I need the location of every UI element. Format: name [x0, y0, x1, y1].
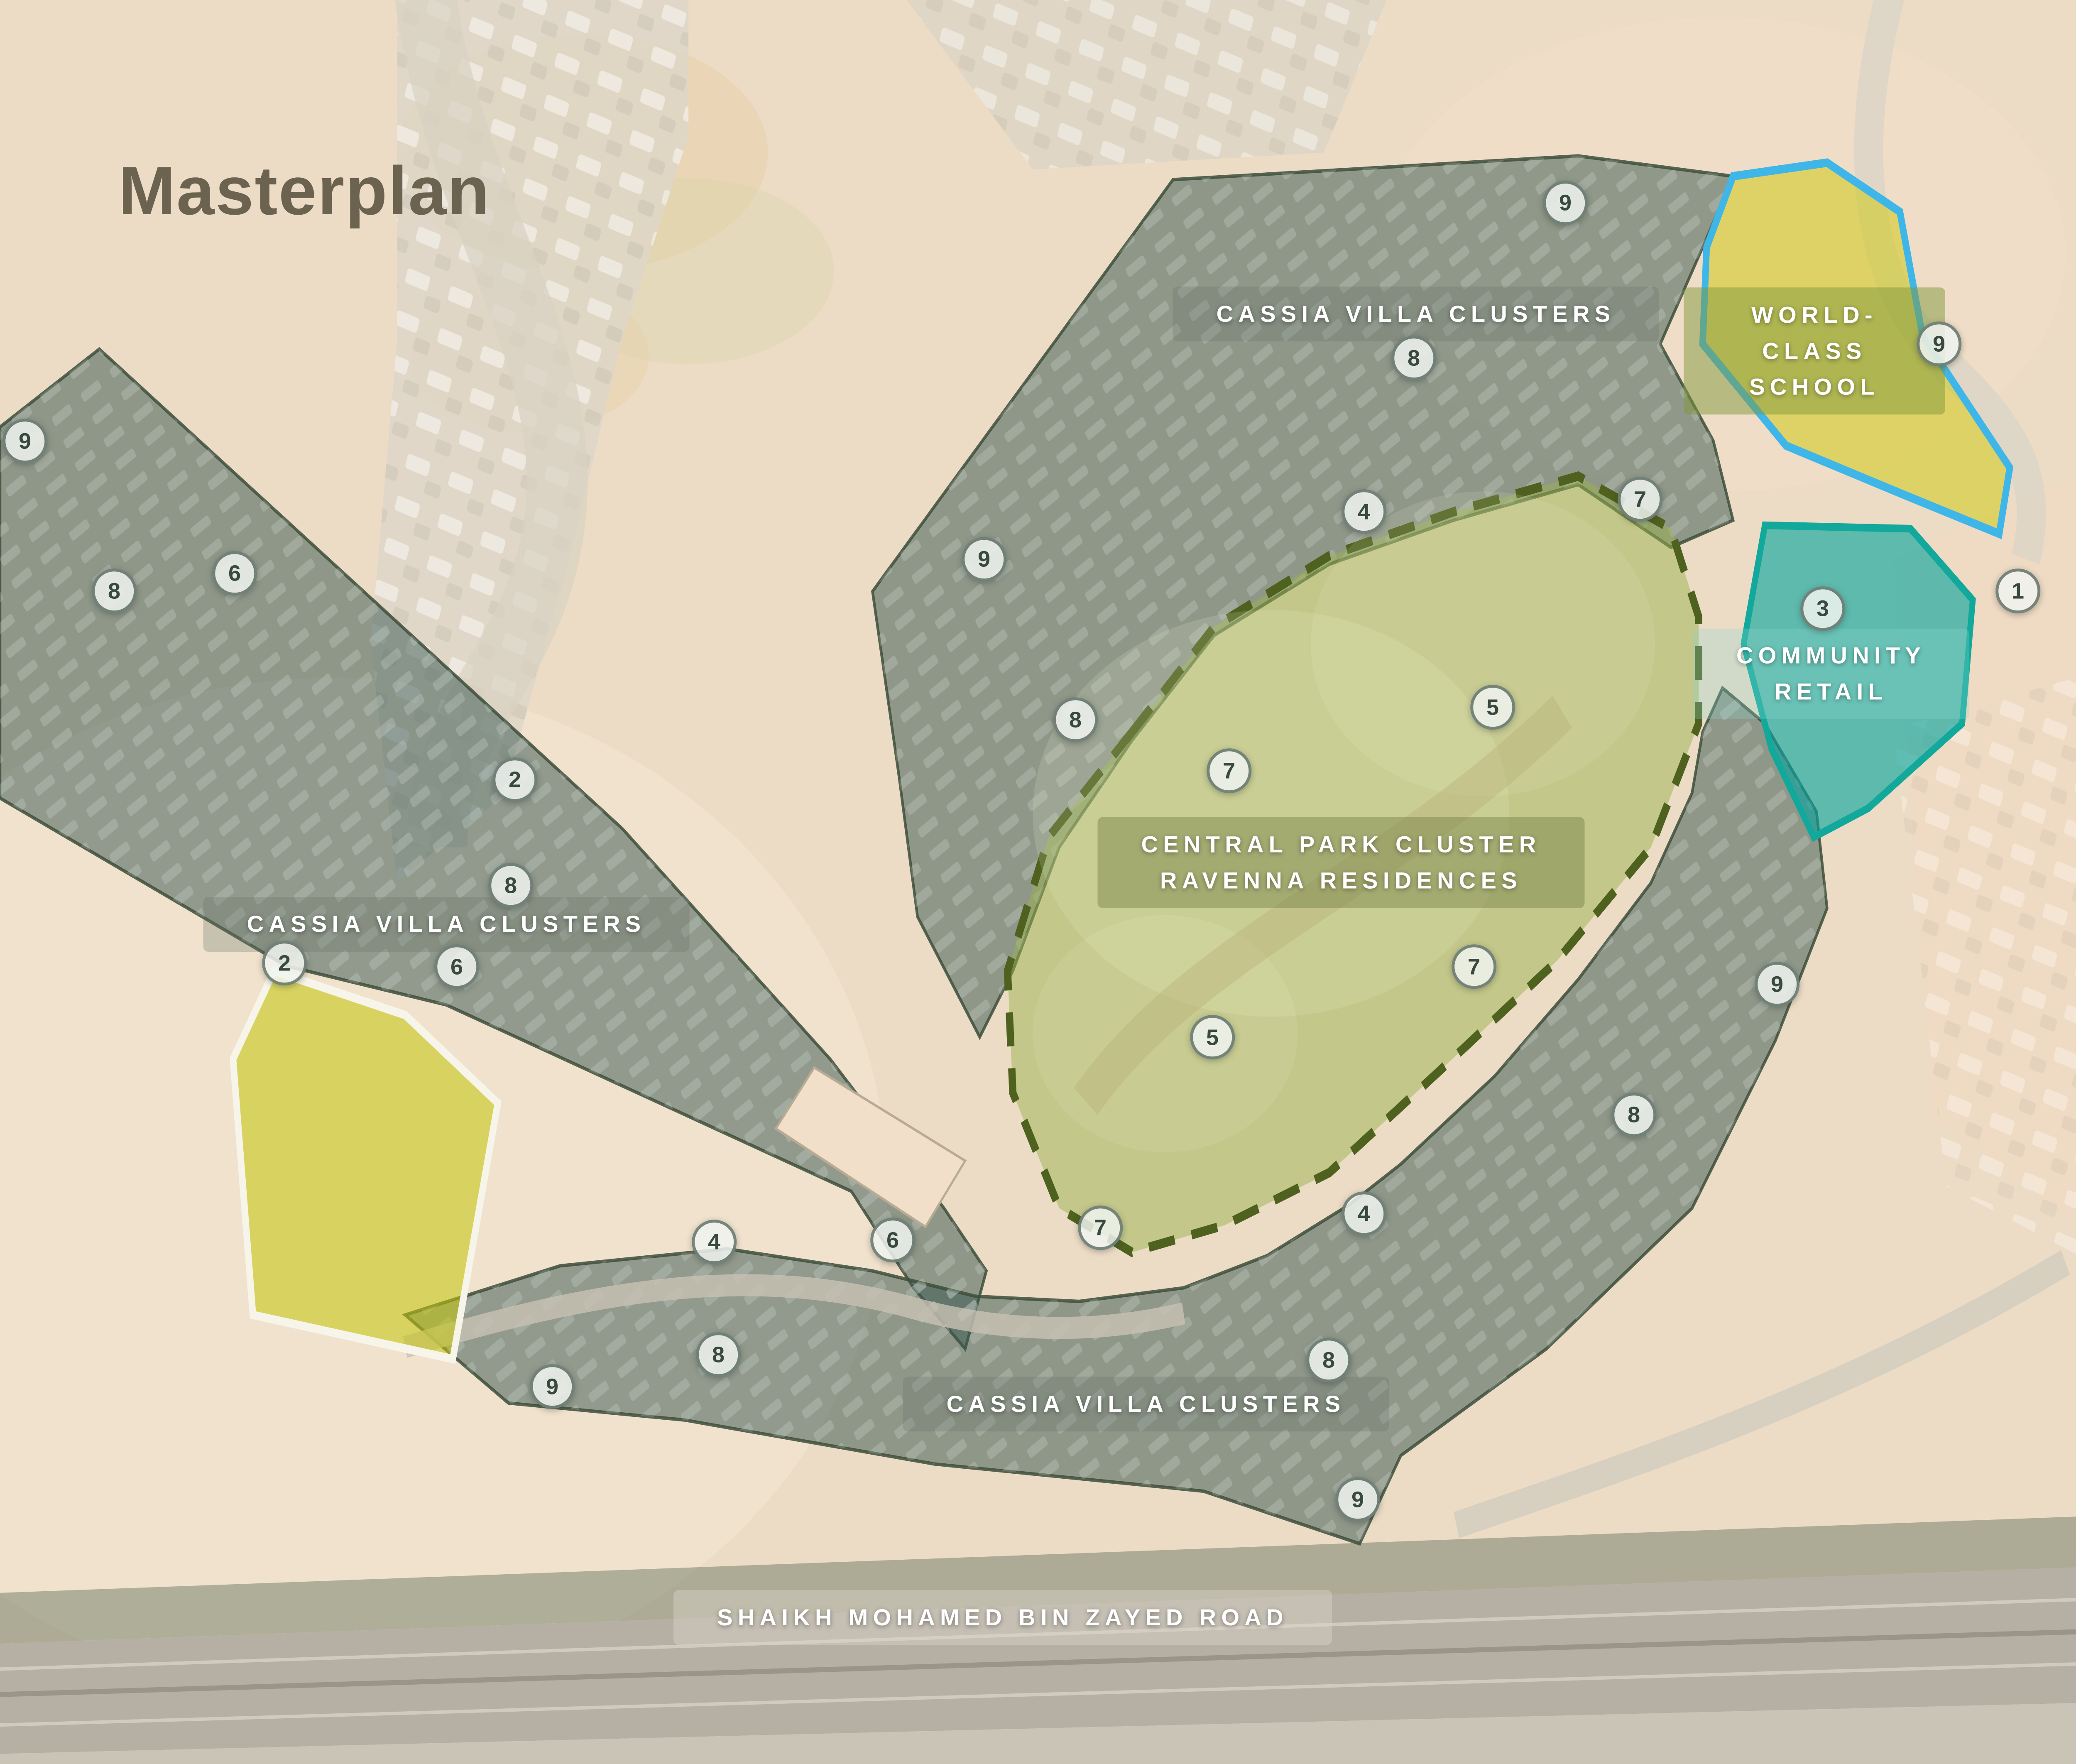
map-marker-8[interactable]: 8: [1053, 697, 1098, 742]
markers-layer: 989134798576892826798564748989: [0, 0, 2076, 1764]
map-marker-9[interactable]: 9: [1917, 322, 1961, 367]
map-marker-4[interactable]: 4: [1342, 489, 1386, 534]
map-marker-8[interactable]: 8: [488, 863, 533, 908]
map-marker-8[interactable]: 8: [1306, 1338, 1351, 1382]
map-marker-6[interactable]: 6: [434, 944, 479, 989]
masterplan-map: Masterplan CASSIA VILLA CLUSTERS CASSIA …: [0, 0, 2076, 1764]
map-marker-8[interactable]: 8: [696, 1333, 741, 1377]
map-marker-5[interactable]: 5: [1470, 685, 1515, 730]
map-marker-4[interactable]: 4: [692, 1220, 737, 1264]
map-marker-6[interactable]: 6: [870, 1218, 915, 1263]
map-marker-8[interactable]: 8: [1391, 336, 1436, 381]
map-marker-9[interactable]: 9: [530, 1364, 575, 1409]
map-marker-7[interactable]: 7: [1078, 1205, 1123, 1250]
map-marker-2[interactable]: 2: [492, 757, 537, 802]
map-marker-9[interactable]: 9: [2, 419, 47, 463]
map-marker-6[interactable]: 6: [212, 551, 257, 596]
map-marker-9[interactable]: 9: [962, 537, 1006, 582]
map-marker-9[interactable]: 9: [1755, 962, 1799, 1007]
map-marker-4[interactable]: 4: [1342, 1191, 1386, 1236]
map-marker-1[interactable]: 1: [1995, 568, 2040, 613]
map-marker-8[interactable]: 8: [92, 568, 137, 613]
map-marker-9[interactable]: 9: [1335, 1477, 1380, 1522]
map-marker-8[interactable]: 8: [1611, 1093, 1656, 1137]
map-marker-5[interactable]: 5: [1190, 1015, 1235, 1060]
map-marker-9[interactable]: 9: [1543, 181, 1588, 225]
map-marker-7[interactable]: 7: [1618, 477, 1662, 522]
map-marker-7[interactable]: 7: [1452, 944, 1496, 989]
map-marker-7[interactable]: 7: [1207, 749, 1251, 794]
map-marker-3[interactable]: 3: [1800, 586, 1845, 631]
map-marker-2[interactable]: 2: [262, 941, 307, 986]
